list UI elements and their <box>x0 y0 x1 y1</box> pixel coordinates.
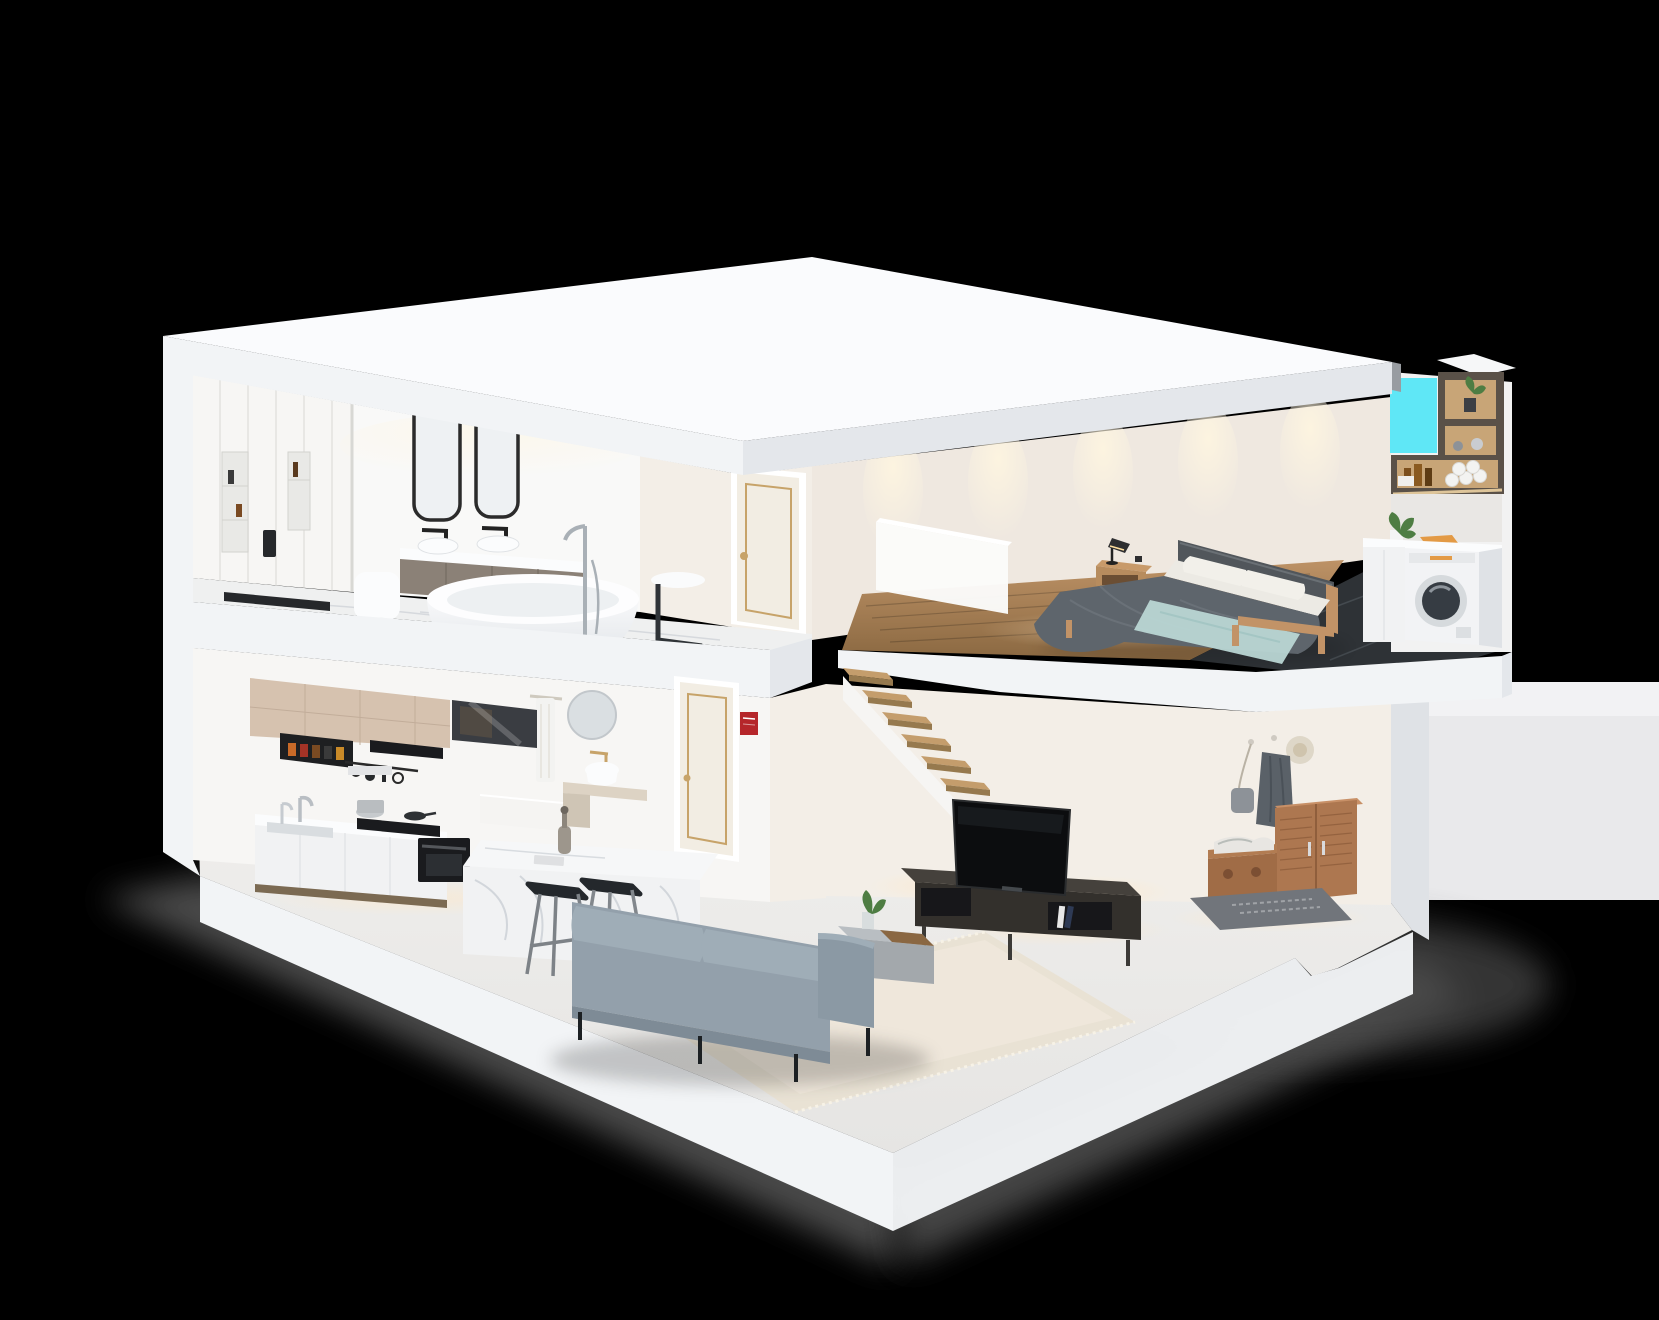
tv-stand <box>1002 888 1022 890</box>
cutaway-apartment-illustration <box>0 0 1659 1320</box>
door-handle <box>684 775 691 782</box>
storage-bench <box>1208 836 1277 899</box>
washing-machine <box>1405 548 1502 648</box>
upper-door <box>731 466 806 634</box>
lower-door <box>674 676 739 862</box>
shelf-jar <box>1471 438 1483 450</box>
built-in-oven <box>418 838 470 882</box>
render-canvas: Isometric 3D cutaway dollhouse rendering… <box>0 0 1659 1320</box>
roof-end-cap <box>1392 362 1401 392</box>
shower-valve <box>263 530 276 557</box>
vessel-sink-left <box>418 538 458 554</box>
washer-indicator <box>1430 556 1452 560</box>
hall-wall <box>770 684 826 902</box>
right-exterior-wall <box>1391 690 1429 940</box>
red-safety-sign <box>740 712 758 735</box>
shower-marble-wall <box>193 375 352 592</box>
tv <box>953 800 1070 895</box>
shoulder-bag <box>1231 788 1254 813</box>
round-mirror <box>568 691 616 739</box>
rail-shelf <box>348 766 392 775</box>
bed-leg <box>1318 634 1325 654</box>
vessel-sink <box>585 762 619 786</box>
shelf-jar <box>1453 441 1463 451</box>
bed-leg <box>1066 620 1072 638</box>
door-handle <box>741 553 748 560</box>
vessel-sink-right <box>477 536 519 552</box>
shoe-cabinet <box>1275 798 1363 902</box>
bed-frame-post <box>1326 584 1338 634</box>
sofa-armrest <box>818 936 874 1028</box>
washer-filter-hatch <box>1456 627 1471 638</box>
bed-leg <box>1232 625 1239 646</box>
open-shelf <box>921 888 971 916</box>
